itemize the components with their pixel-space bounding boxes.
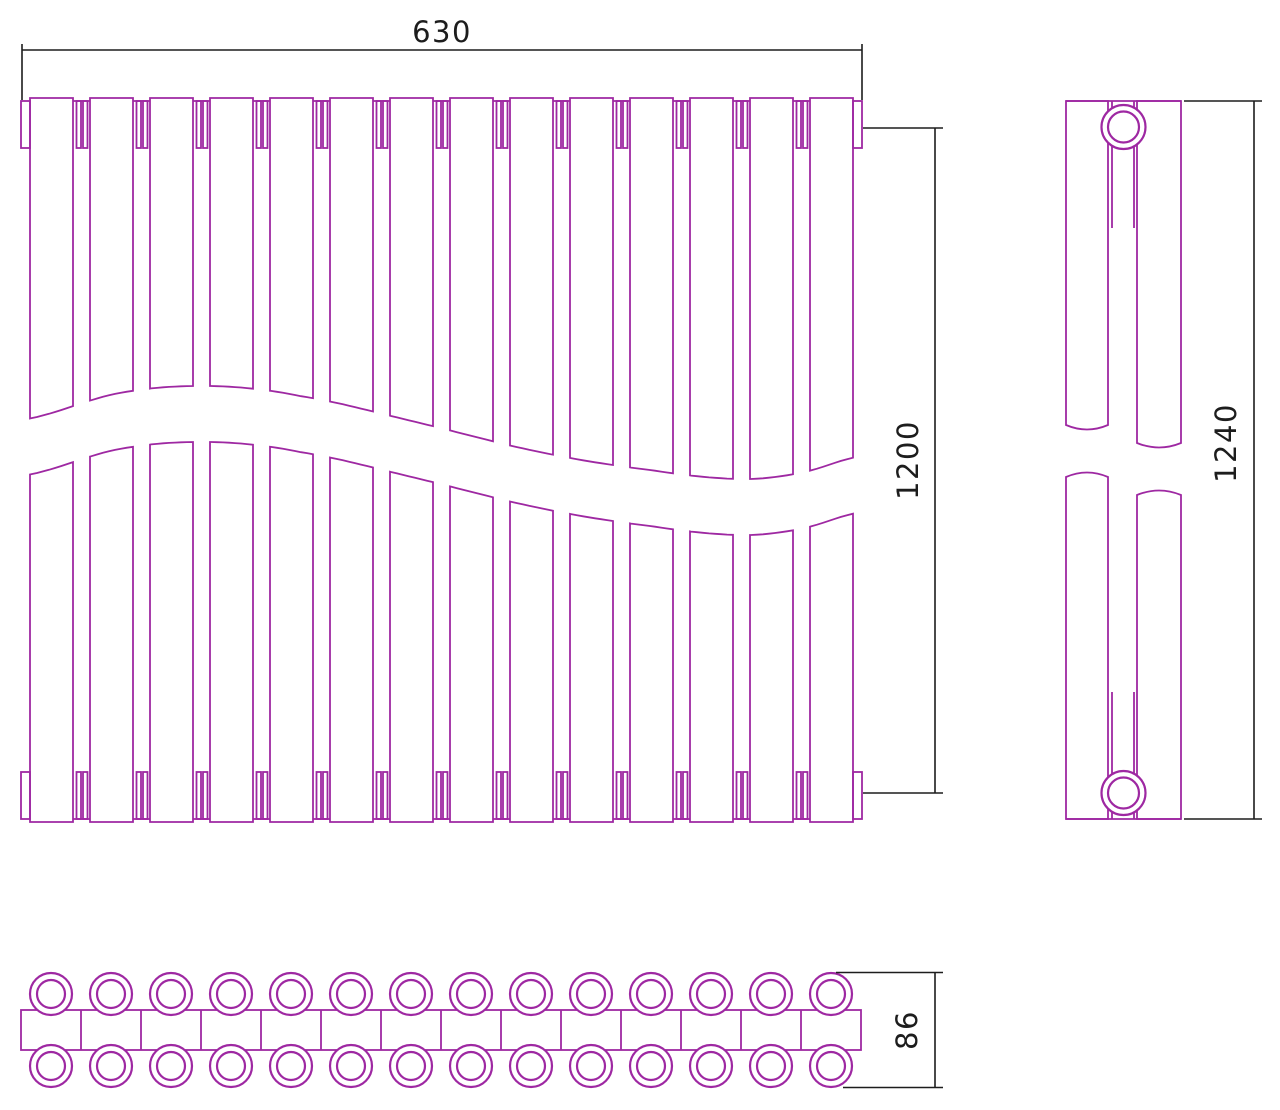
dimension-center-height-label: 1200 <box>891 420 925 500</box>
dimension-annotations <box>22 44 1262 1088</box>
dimension-overall-height-label: 1240 <box>1209 403 1243 483</box>
side-view <box>1066 101 1181 819</box>
bottom-view <box>21 973 861 1087</box>
dimension-depth-label: 86 <box>890 1010 924 1050</box>
front-view <box>21 98 862 822</box>
dimension-labels: 630 1200 1240 86 <box>412 15 1243 1050</box>
radiator-technical-drawing: 630 1200 1240 86 <box>0 0 1280 1110</box>
dimension-width-label: 630 <box>412 15 472 49</box>
drawing-canvas: 630 1200 1240 86 <box>0 0 1280 1110</box>
